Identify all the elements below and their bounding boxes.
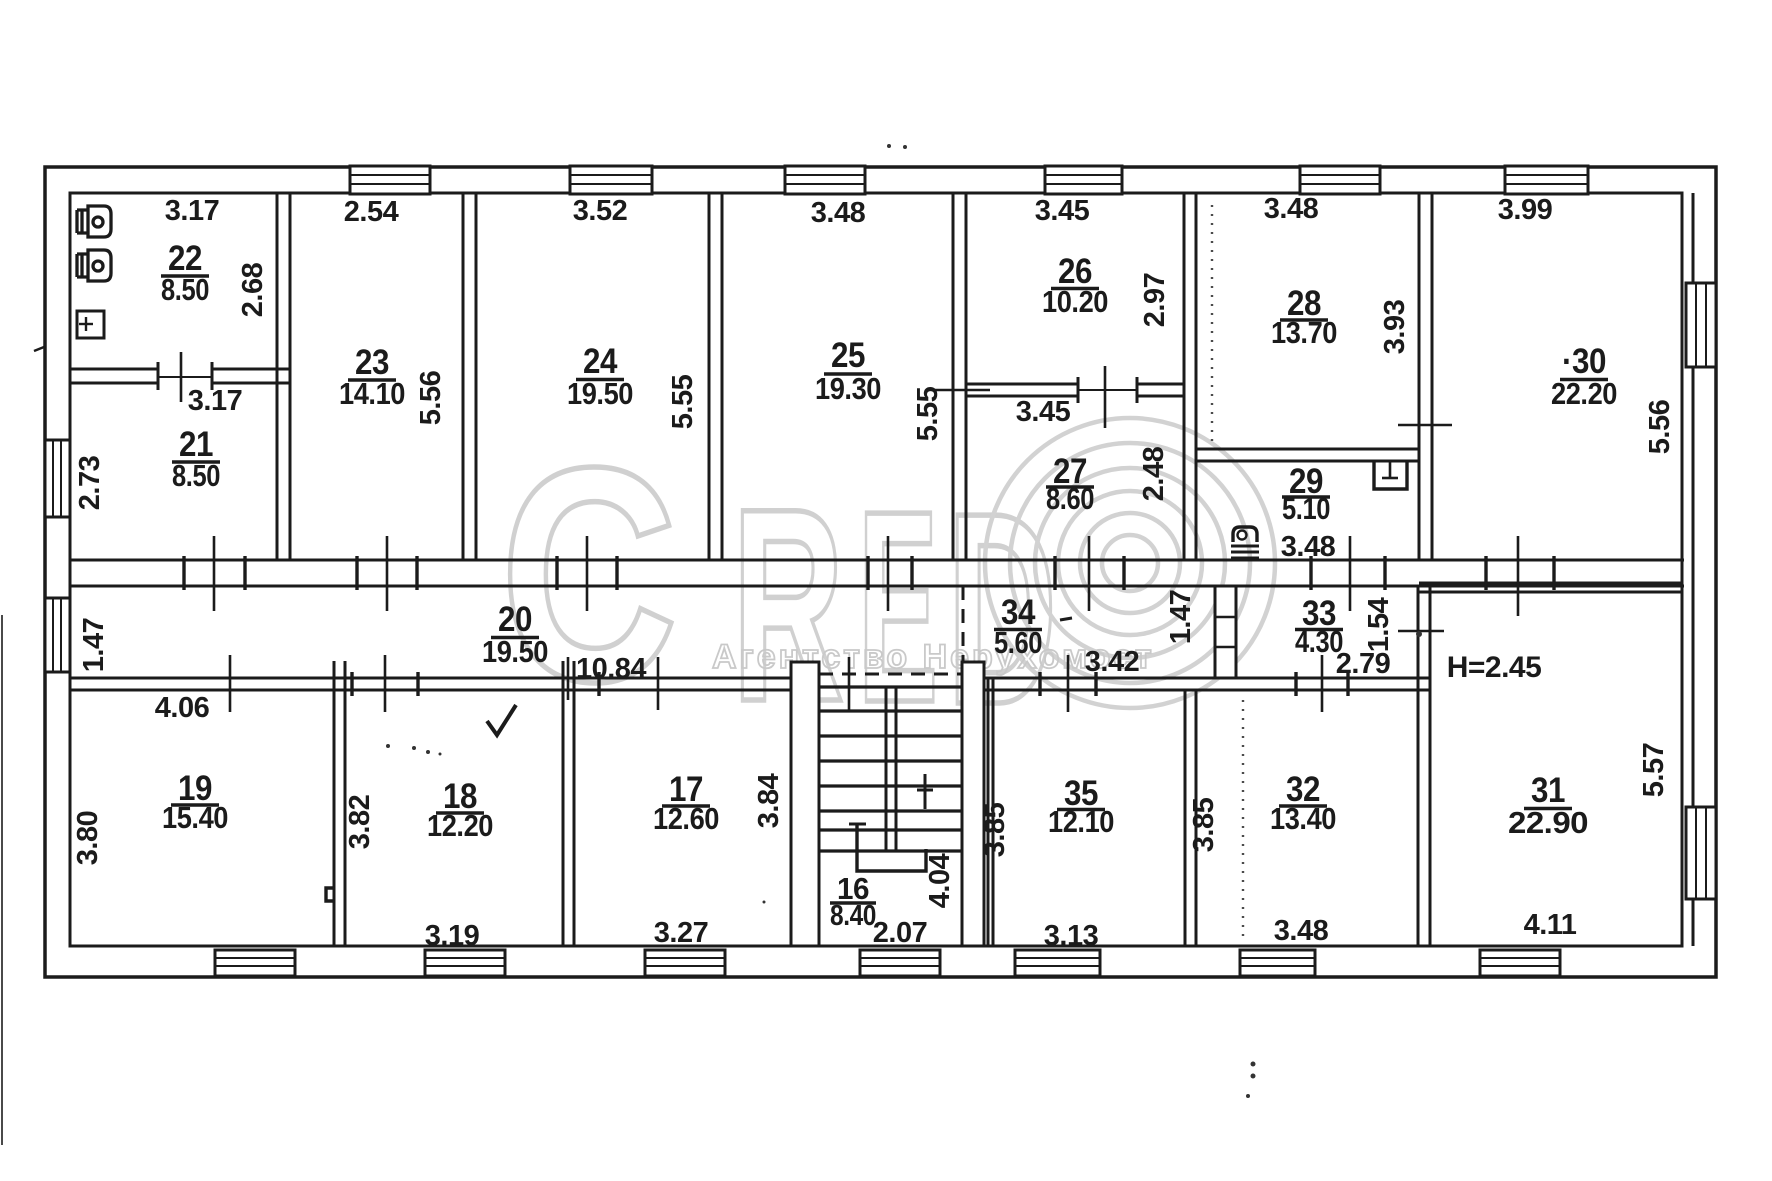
svg-text:3.52: 3.52 <box>573 195 627 227</box>
svg-text:19.50: 19.50 <box>567 376 633 411</box>
svg-text:3.13: 3.13 <box>1044 920 1099 952</box>
svg-text:2.54: 2.54 <box>344 196 399 228</box>
svg-text:4.06: 4.06 <box>155 692 210 724</box>
svg-text:3.48: 3.48 <box>1274 915 1329 947</box>
svg-text:19.30: 19.30 <box>815 371 881 406</box>
svg-text:10.20: 10.20 <box>1042 284 1108 319</box>
svg-text:3.85: 3.85 <box>979 802 1011 857</box>
svg-text:2.48: 2.48 <box>1138 446 1170 501</box>
svg-text:3.82: 3.82 <box>344 795 376 849</box>
svg-text:19.50: 19.50 <box>482 634 548 669</box>
svg-text:5.57: 5.57 <box>1638 743 1670 797</box>
svg-text:3.48: 3.48 <box>1281 531 1336 563</box>
svg-text:25: 25 <box>831 336 865 375</box>
svg-text:8.50: 8.50 <box>172 458 220 493</box>
svg-text:5.10: 5.10 <box>1282 491 1330 526</box>
svg-text:1.47: 1.47 <box>78 618 110 672</box>
svg-text:2.07: 2.07 <box>873 917 927 949</box>
svg-text:13.70: 13.70 <box>1271 315 1337 350</box>
svg-text:15.40: 15.40 <box>162 800 228 835</box>
svg-text:3.84: 3.84 <box>753 773 785 828</box>
svg-text:3.48: 3.48 <box>1264 193 1319 225</box>
svg-text:3.17: 3.17 <box>188 385 242 417</box>
svg-text:3.85: 3.85 <box>1188 797 1220 852</box>
svg-text:5.55: 5.55 <box>912 386 944 441</box>
svg-text:5.60: 5.60 <box>994 625 1042 660</box>
svg-text:R: R <box>732 452 844 759</box>
svg-text:12.20: 12.20 <box>427 808 493 843</box>
svg-text:3.45: 3.45 <box>1016 396 1071 428</box>
svg-text:5.56: 5.56 <box>415 370 447 425</box>
svg-text:3.48: 3.48 <box>811 197 866 229</box>
svg-text:H=2.45: H=2.45 <box>1447 651 1542 684</box>
svg-text:3.42: 3.42 <box>1085 646 1139 678</box>
svg-text:12.10: 12.10 <box>1048 804 1114 839</box>
svg-text:8.60: 8.60 <box>1046 481 1094 516</box>
svg-text:22.90: 22.90 <box>1508 805 1588 840</box>
svg-text:3.93: 3.93 <box>1379 299 1411 354</box>
svg-text:1.54: 1.54 <box>1363 597 1395 652</box>
svg-text:4.11: 4.11 <box>1524 909 1577 941</box>
svg-text:C: C <box>500 404 678 745</box>
svg-text:8.50: 8.50 <box>161 272 209 307</box>
svg-text:5.55: 5.55 <box>667 374 699 429</box>
svg-text:3.17: 3.17 <box>165 195 219 227</box>
svg-text:12.60: 12.60 <box>653 801 719 836</box>
svg-text:3.19: 3.19 <box>425 920 480 952</box>
svg-text:4.04: 4.04 <box>924 853 956 908</box>
svg-text:3.80: 3.80 <box>72 811 104 865</box>
svg-text:22.20: 22.20 <box>1551 376 1617 411</box>
svg-text:E: E <box>858 454 938 759</box>
svg-text:2.73: 2.73 <box>74 455 106 510</box>
svg-text:3.27: 3.27 <box>654 917 708 949</box>
svg-text:8.40: 8.40 <box>830 900 876 932</box>
svg-text:3.99: 3.99 <box>1498 194 1553 226</box>
svg-text:2.97: 2.97 <box>1139 273 1171 327</box>
svg-text:13.40: 13.40 <box>1270 801 1336 836</box>
svg-text:10.84: 10.84 <box>576 653 646 685</box>
svg-text:5.56: 5.56 <box>1644 399 1676 454</box>
svg-text:2.68: 2.68 <box>237 262 269 317</box>
svg-text:3.45: 3.45 <box>1035 195 1090 227</box>
svg-text:14.10: 14.10 <box>339 376 405 411</box>
svg-text:1.47: 1.47 <box>1165 590 1197 644</box>
